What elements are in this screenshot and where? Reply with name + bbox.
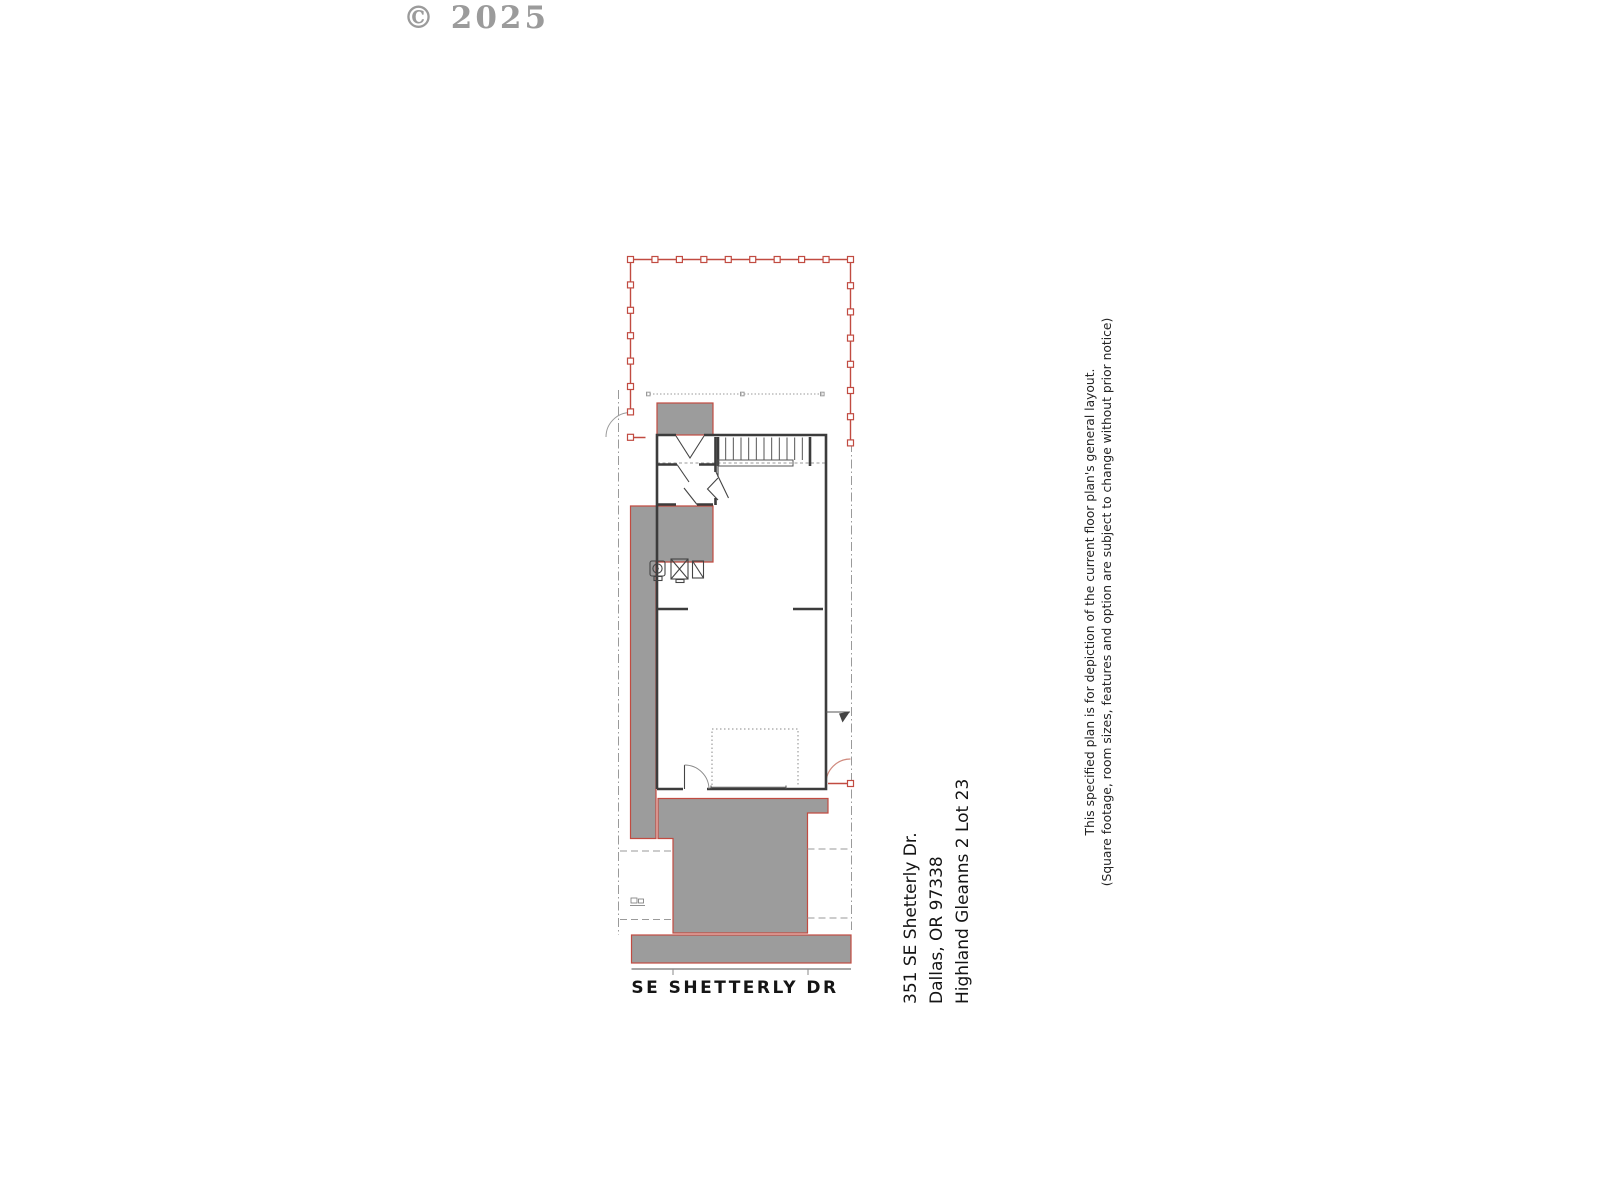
address-line-3: Highland Gleanns 2 Lot 23 <box>950 762 976 1004</box>
utility-symbol <box>630 898 645 906</box>
parking-space-right <box>808 849 852 918</box>
disclaimer-line-2: (Square footage, room sizes, features an… <box>1099 312 1116 892</box>
street-label: SE SHETTERLY DR <box>600 978 870 998</box>
parking-space-left <box>620 851 673 920</box>
copyright-watermark: © 2025 <box>403 0 549 36</box>
gate-arc-right <box>826 759 851 784</box>
site-plan-page: © 2025 <box>0 0 1600 1200</box>
building-floor <box>657 435 826 789</box>
disclaimer-block: This specified plan is for depiction of … <box>1082 312 1116 892</box>
window-arrow <box>826 712 850 723</box>
driveway-shaded <box>658 799 828 934</box>
disclaimer-line-1: This specified plan is for depiction of … <box>1082 312 1099 892</box>
address-line-2: Dallas, OR 97338 <box>924 762 950 1004</box>
site-plan-drawing <box>600 240 870 980</box>
curb-line <box>632 969 852 975</box>
address-line-1: 351 SE Shetterly Dr. <box>898 762 924 1004</box>
road-strip-shaded <box>632 935 852 963</box>
deck-dotted-line <box>646 392 824 396</box>
front-porch-shaded <box>657 403 713 435</box>
address-block: 351 SE Shetterly Dr. Dallas, OR 97338 Hi… <box>898 762 976 1004</box>
